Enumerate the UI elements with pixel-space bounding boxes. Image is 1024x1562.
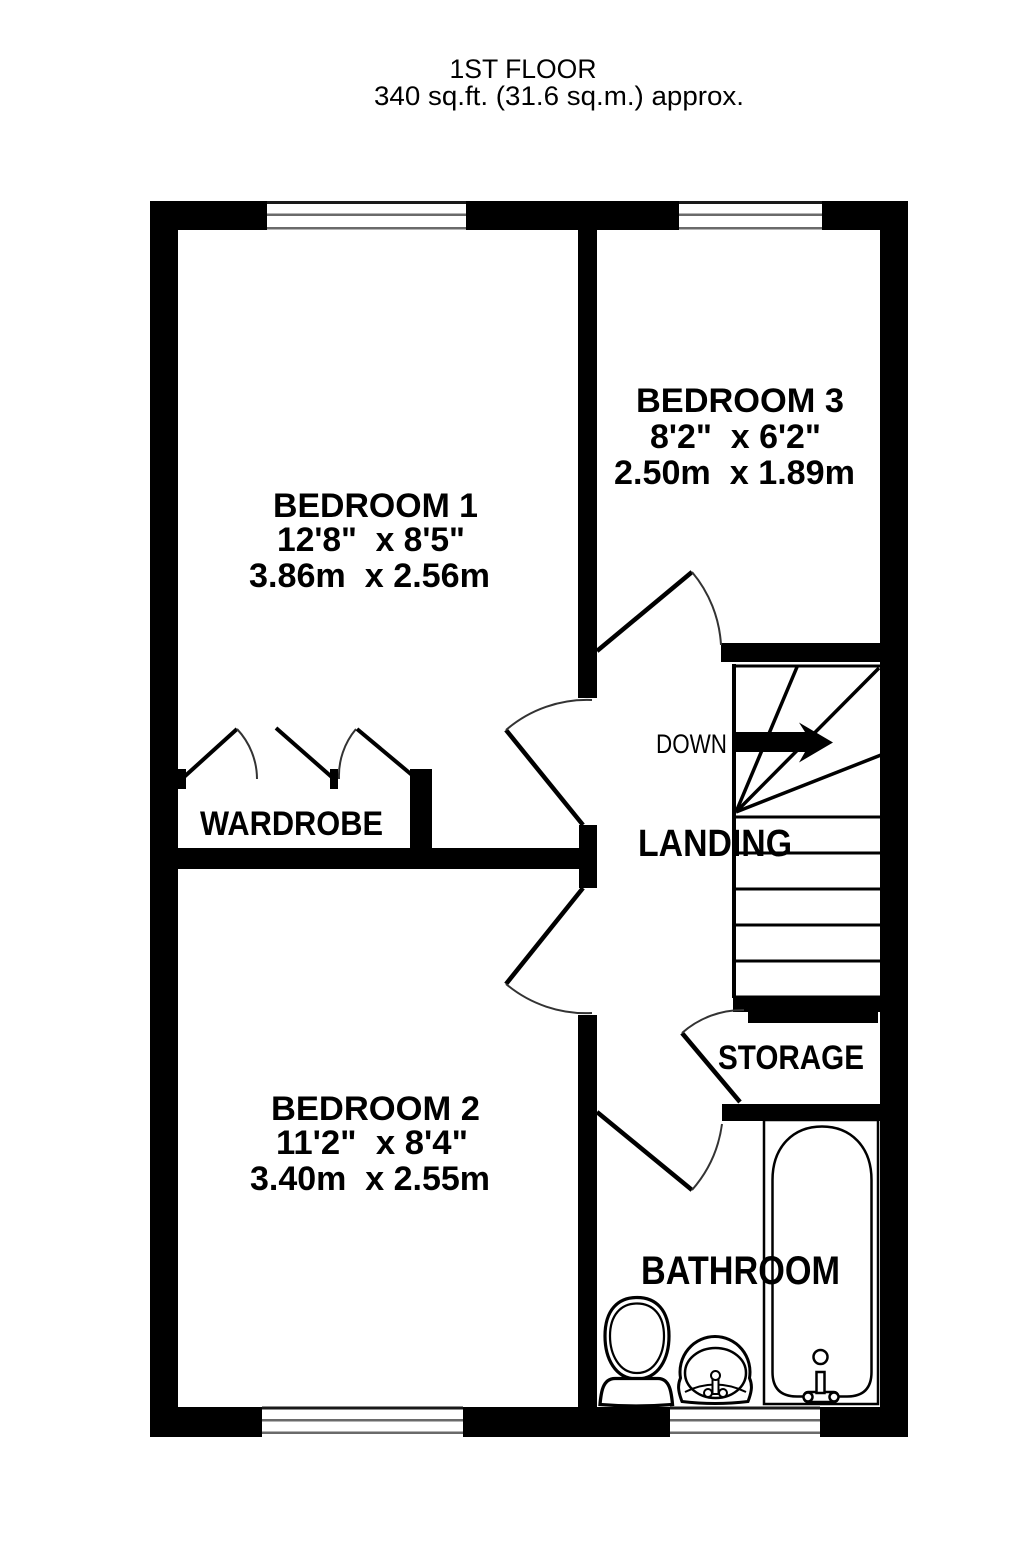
svg-text:2.50m x 1.89m: 2.50m x 1.89m bbox=[614, 454, 855, 492]
svg-text:BEDROOM 1: BEDROOM 1 bbox=[273, 487, 478, 525]
svg-text:BEDROOM 3: BEDROOM 3 bbox=[636, 382, 844, 420]
svg-text:DOWN: DOWN bbox=[656, 729, 727, 759]
svg-text:8'2" x 6'2": 8'2" x 6'2" bbox=[650, 418, 821, 456]
svg-text:340 sq.ft. (31.6 sq.m.) approx: 340 sq.ft. (31.6 sq.m.) approx. bbox=[374, 81, 744, 111]
svg-text:WARDROBE: WARDROBE bbox=[200, 805, 383, 843]
svg-text:11'2" x 8'4": 11'2" x 8'4" bbox=[276, 1124, 468, 1162]
svg-text:LANDING: LANDING bbox=[638, 823, 792, 865]
svg-text:BEDROOM 2: BEDROOM 2 bbox=[271, 1090, 480, 1128]
svg-text:3.40m x 2.55m: 3.40m x 2.55m bbox=[250, 1160, 490, 1198]
svg-text:1ST FLOOR: 1ST FLOOR bbox=[450, 54, 597, 84]
svg-text:BATHROOM: BATHROOM bbox=[641, 1249, 840, 1293]
svg-text:3.86m x 2.56m: 3.86m x 2.56m bbox=[249, 557, 490, 595]
svg-text:STORAGE: STORAGE bbox=[718, 1039, 864, 1077]
svg-text:12'8" x 8'5": 12'8" x 8'5" bbox=[277, 521, 465, 559]
